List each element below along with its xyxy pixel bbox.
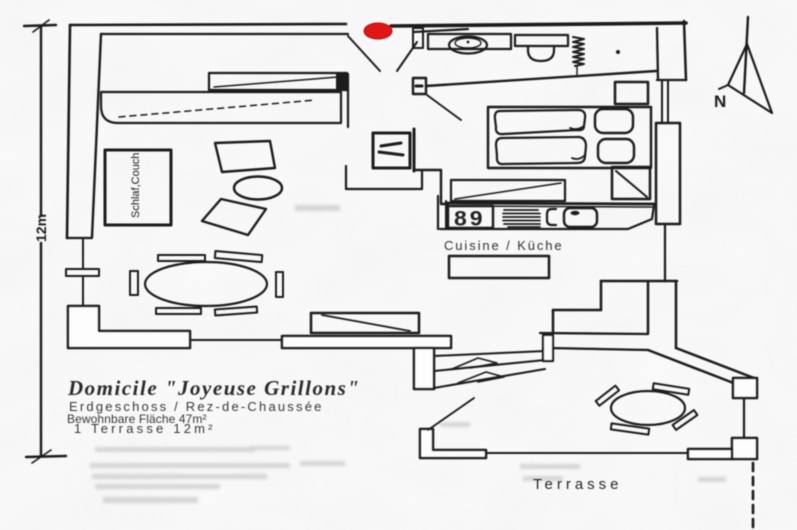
svg-text:Cuisine / Küche: Cuisine / Küche (444, 238, 564, 253)
svg-text:1 Terrasse 12m²: 1 Terrasse 12m² (74, 421, 216, 436)
svg-text:89: 89 (454, 206, 486, 230)
svg-text:Schlaf,Couch: Schlaf,Couch (130, 153, 142, 218)
svg-text:Terrasse: Terrasse (533, 476, 623, 493)
svg-text:12m: 12m (33, 214, 49, 242)
svg-text:N: N (714, 92, 726, 111)
svg-text:Domicile "Joyeuse Grillons": Domicile "Joyeuse Grillons" (67, 376, 360, 400)
